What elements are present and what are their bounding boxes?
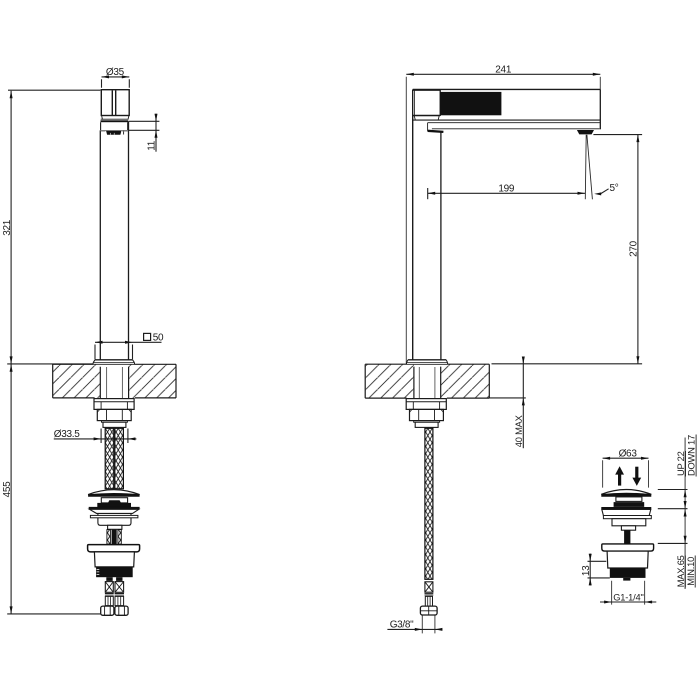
svg-text:UP 22: UP 22 [676,451,686,476]
svg-text:13: 13 [581,565,592,576]
svg-text:199: 199 [498,184,515,195]
svg-text:G1-1/4": G1-1/4" [613,592,643,602]
svg-text:MIN.10: MIN.10 [686,557,696,586]
svg-text:455: 455 [2,481,13,498]
svg-text:40 MAX: 40 MAX [514,415,524,447]
svg-text:270: 270 [629,240,640,257]
svg-text:MAX.65: MAX.65 [676,555,686,587]
svg-text:Ø35: Ø35 [106,67,125,78]
svg-text:Ø63: Ø63 [619,448,638,459]
svg-text:50: 50 [153,333,164,344]
svg-text:321: 321 [2,219,13,236]
svg-text:Ø33.5: Ø33.5 [54,429,80,440]
svg-text:11: 11 [147,140,158,151]
svg-text:241: 241 [495,65,512,76]
svg-text:DOWN 17: DOWN 17 [687,435,697,476]
svg-text:5°: 5° [610,183,619,194]
svg-text:G3/8": G3/8" [390,620,414,631]
